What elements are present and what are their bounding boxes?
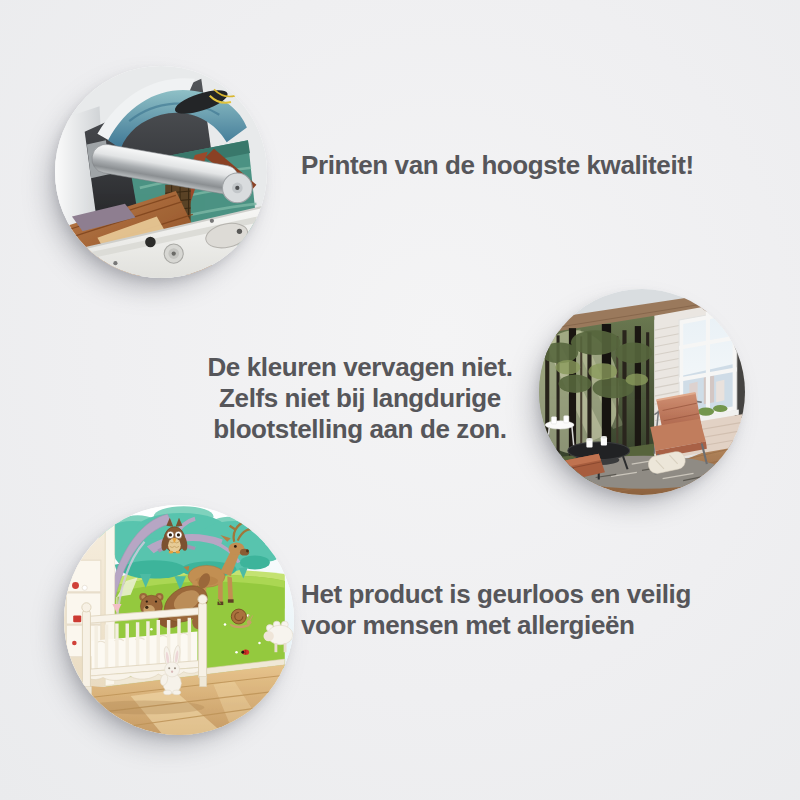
print-machine-photo-image	[55, 66, 267, 278]
caption-line: Het product is geurloos en veilig	[301, 579, 691, 610]
nursery-mural-photo-image	[64, 505, 294, 735]
product-benefits-graphic: Printen van de hoogste kwaliteit!	[0, 0, 800, 800]
caption-print-quality: Printen van de hoogste kwaliteit!	[301, 150, 694, 181]
caption-allergy-safe: Het product is geurloos en veilig voor m…	[301, 579, 691, 641]
caption-line: Zelfs niet bij langdurige	[150, 383, 570, 414]
caption-line: Printen van de hoogste kwaliteit!	[301, 150, 694, 181]
caption-line: blootstelling aan de zon.	[150, 414, 570, 445]
caption-line: voor mensen met allergieën	[301, 610, 691, 641]
print-machine-photo	[55, 66, 267, 278]
nursery-mural-photo	[64, 505, 294, 735]
caption-line: De kleuren vervagen niet.	[150, 352, 570, 383]
caption-color-fastness: De kleuren vervagen niet. Zelfs niet bij…	[150, 352, 570, 445]
